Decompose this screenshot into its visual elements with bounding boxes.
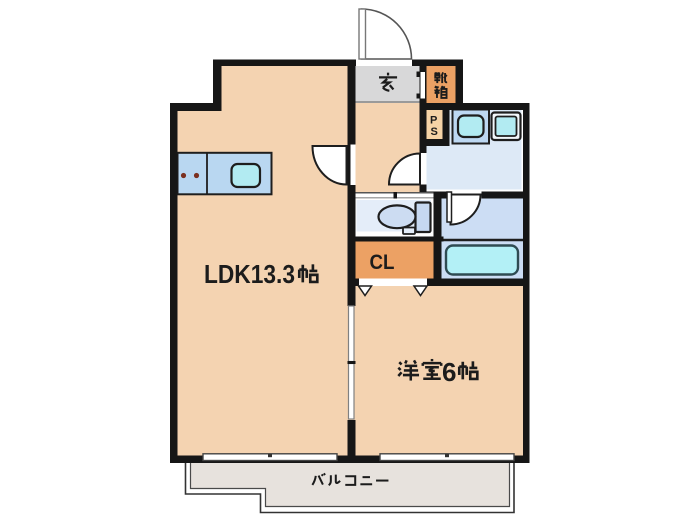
svg-text:6: 6: [442, 357, 456, 387]
svg-text:P: P: [430, 115, 437, 127]
svg-text:LDK13.3: LDK13.3: [204, 259, 295, 289]
svg-text:S: S: [431, 126, 438, 138]
svg-text:CL: CL: [370, 251, 395, 274]
